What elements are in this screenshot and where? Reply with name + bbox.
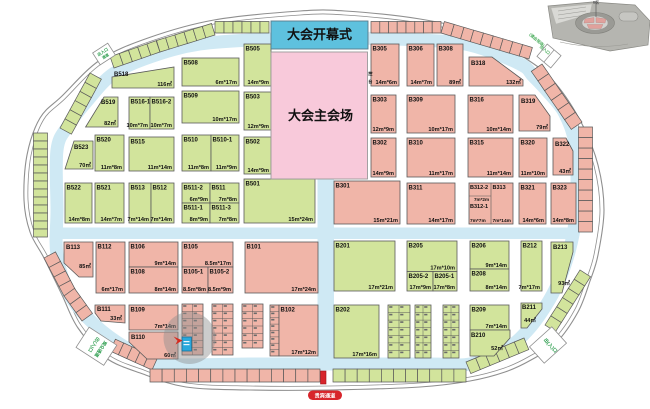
svg-text:B521: B521 bbox=[97, 186, 112, 192]
svg-text:12m*9m: 12m*9m bbox=[248, 124, 269, 130]
svg-text:B301: B301 bbox=[336, 184, 351, 190]
svg-text:B208: B208 bbox=[472, 272, 487, 278]
svg-text:10m*7m: 10m*7m bbox=[127, 123, 148, 129]
svg-text:B302: B302 bbox=[373, 141, 388, 147]
svg-text:10m*17m: 10m*17m bbox=[212, 117, 237, 123]
svg-text:B102: B102 bbox=[281, 308, 296, 314]
svg-text:B518: B518 bbox=[114, 72, 129, 78]
svg-text:17m*24m: 17m*24m bbox=[291, 287, 316, 293]
svg-text:B210: B210 bbox=[471, 333, 486, 339]
svg-text:B105: B105 bbox=[184, 245, 199, 251]
svg-text:8.5m*8m: 8.5m*8m bbox=[183, 287, 206, 293]
svg-text:B312-2: B312-2 bbox=[470, 185, 488, 191]
svg-text:89㎡: 89㎡ bbox=[449, 78, 461, 86]
svg-text:B310: B310 bbox=[409, 141, 424, 147]
svg-text:B510: B510 bbox=[184, 138, 199, 144]
svg-text:11m*10m: 11m*10m bbox=[521, 171, 545, 177]
svg-text:B511-2: B511-2 bbox=[184, 186, 204, 192]
svg-text:14m*9m: 14m*9m bbox=[248, 168, 269, 174]
svg-text:11m*14m: 11m*14m bbox=[148, 165, 172, 171]
svg-text:B311: B311 bbox=[409, 186, 424, 192]
svg-text:10m*7m: 10m*7m bbox=[151, 123, 172, 129]
svg-text:B309: B309 bbox=[409, 98, 424, 104]
svg-text:93㎡: 93㎡ bbox=[558, 279, 570, 287]
svg-text:52㎡: 52㎡ bbox=[491, 344, 503, 352]
svg-text:8.5m*9m: 8.5m*9m bbox=[208, 287, 231, 293]
svg-text:6m*9m: 6m*9m bbox=[190, 197, 208, 203]
svg-text:7m*8m: 7m*8m bbox=[219, 217, 237, 223]
svg-text:6m*17m: 6m*17m bbox=[216, 80, 237, 86]
svg-text:10m*17m: 10m*17m bbox=[428, 127, 453, 133]
svg-text:7m*14m: 7m*14m bbox=[128, 217, 149, 223]
svg-text:11m*8m: 11m*8m bbox=[101, 165, 122, 171]
svg-text:7m*14m: 7m*14m bbox=[151, 217, 172, 223]
svg-text:B320: B320 bbox=[521, 141, 536, 147]
svg-text:14m*8m: 14m*8m bbox=[553, 218, 574, 224]
svg-text:B303: B303 bbox=[373, 98, 388, 104]
svg-text:B206: B206 bbox=[472, 244, 487, 250]
svg-text:B205-1: B205-1 bbox=[435, 274, 455, 280]
svg-text:B308: B308 bbox=[439, 47, 454, 53]
svg-text:B503: B503 bbox=[246, 95, 261, 101]
svg-text:B323: B323 bbox=[553, 186, 568, 192]
svg-text:11m*9m: 11m*9m bbox=[216, 165, 237, 171]
svg-text:B313: B313 bbox=[493, 185, 506, 191]
svg-text:B205: B205 bbox=[409, 244, 424, 250]
svg-text:116㎡: 116㎡ bbox=[157, 80, 172, 88]
svg-text:大会主会场: 大会主会场 bbox=[288, 108, 353, 123]
svg-text:14m*9m: 14m*9m bbox=[373, 171, 394, 177]
svg-text:43㎡: 43㎡ bbox=[559, 167, 571, 175]
svg-text:B511-3: B511-3 bbox=[212, 206, 232, 212]
svg-text:44㎡: 44㎡ bbox=[524, 316, 536, 324]
svg-text:大会开幕式: 大会开幕式 bbox=[287, 27, 352, 42]
svg-text:14m*6m: 14m*6m bbox=[523, 218, 544, 224]
svg-text:B520: B520 bbox=[97, 138, 112, 144]
svg-text:14m*7m: 14m*7m bbox=[101, 217, 122, 223]
svg-text:B205-2: B205-2 bbox=[409, 274, 429, 280]
svg-text:33㎡: 33㎡ bbox=[110, 314, 122, 322]
svg-text:17m*8m: 17m*8m bbox=[434, 285, 455, 291]
svg-text:B101: B101 bbox=[247, 245, 262, 251]
svg-text:9m*14m: 9m*14m bbox=[486, 263, 507, 269]
svg-text:11m*8m: 11m*8m bbox=[188, 165, 209, 171]
svg-text:B区: B区 bbox=[593, 0, 600, 5]
svg-text:B511: B511 bbox=[212, 186, 227, 192]
svg-text:B108: B108 bbox=[131, 270, 146, 276]
svg-text:B112: B112 bbox=[98, 245, 113, 251]
svg-text:B105-2: B105-2 bbox=[210, 270, 230, 276]
svg-text:B318: B318 bbox=[471, 61, 486, 67]
svg-text:B213: B213 bbox=[553, 245, 568, 251]
svg-text:B209: B209 bbox=[472, 308, 487, 314]
svg-text:贵宾通道: 贵宾通道 bbox=[315, 392, 337, 400]
svg-text:B211: B211 bbox=[522, 305, 537, 311]
svg-text:B319: B319 bbox=[521, 99, 536, 105]
svg-text:17m*16m: 17m*16m bbox=[352, 352, 377, 358]
svg-text:12m*9m: 12m*9m bbox=[373, 127, 394, 133]
svg-text:B306: B306 bbox=[409, 47, 424, 53]
svg-text:B523: B523 bbox=[74, 145, 89, 151]
svg-text:B516-1: B516-1 bbox=[131, 100, 151, 106]
svg-text:17m*12m: 17m*12m bbox=[291, 350, 316, 356]
svg-text:11m*14m: 11m*14m bbox=[487, 171, 511, 177]
svg-text:B110: B110 bbox=[131, 335, 146, 341]
svg-text:B105-1: B105-1 bbox=[184, 270, 204, 276]
svg-text:B201: B201 bbox=[336, 244, 351, 250]
svg-text:10m*14m: 10m*14m bbox=[486, 127, 511, 133]
svg-text:14m*7m: 14m*7m bbox=[411, 80, 432, 86]
svg-text:B501: B501 bbox=[246, 182, 261, 188]
svg-text:B316: B316 bbox=[470, 98, 485, 104]
svg-text:B522: B522 bbox=[67, 186, 82, 192]
svg-text:8m*14m: 8m*14m bbox=[486, 285, 507, 291]
svg-text:B111: B111 bbox=[97, 307, 111, 313]
svg-text:B516-2: B516-2 bbox=[152, 100, 172, 106]
svg-text:B109: B109 bbox=[131, 308, 146, 314]
svg-text:B322: B322 bbox=[555, 142, 570, 148]
svg-text:B515: B515 bbox=[131, 140, 146, 146]
svg-text:14m*17m: 14m*17m bbox=[428, 218, 453, 224]
svg-text:6m*17m: 6m*17m bbox=[102, 287, 123, 293]
svg-text:82㎡: 82㎡ bbox=[104, 119, 116, 127]
svg-text:11m*17m: 11m*17m bbox=[429, 171, 453, 177]
svg-text:B113: B113 bbox=[66, 245, 81, 251]
svg-text:8.5m*17m: 8.5m*17m bbox=[205, 261, 231, 267]
svg-text:14m*6m: 14m*6m bbox=[376, 80, 397, 86]
svg-text:B512: B512 bbox=[153, 186, 168, 192]
svg-text:B513: B513 bbox=[131, 186, 146, 192]
svg-text:B305: B305 bbox=[373, 47, 388, 53]
svg-text:B315: B315 bbox=[470, 141, 485, 147]
svg-text:132㎡: 132㎡ bbox=[506, 78, 521, 86]
svg-text:14m*9m: 14m*9m bbox=[248, 80, 269, 86]
svg-text:7m*7m: 7m*7m bbox=[470, 218, 486, 224]
svg-text:B519: B519 bbox=[101, 100, 116, 106]
svg-text:7m*8m: 7m*8m bbox=[219, 197, 237, 203]
svg-text:17m*9m: 17m*9m bbox=[410, 285, 431, 291]
svg-text:B505: B505 bbox=[246, 47, 261, 53]
svg-text:B502: B502 bbox=[246, 140, 261, 146]
svg-text:70㎡: 70㎡ bbox=[79, 161, 91, 169]
svg-text:9m*14m: 9m*14m bbox=[155, 261, 176, 267]
svg-text:17m*21m: 17m*21m bbox=[368, 285, 393, 291]
svg-text:14m*8m: 14m*8m bbox=[69, 217, 90, 223]
svg-text:B321: B321 bbox=[521, 186, 536, 192]
svg-text:台: 台 bbox=[368, 78, 372, 85]
svg-text:B511-1: B511-1 bbox=[184, 206, 204, 212]
svg-text:B510-1: B510-1 bbox=[213, 138, 233, 144]
svg-text:B312-1: B312-1 bbox=[470, 204, 488, 210]
svg-text:17m*10m: 17m*10m bbox=[430, 266, 455, 272]
svg-text:B106: B106 bbox=[131, 245, 146, 251]
svg-text:7m*14m: 7m*14m bbox=[493, 218, 511, 224]
svg-text:85㎡: 85㎡ bbox=[79, 262, 91, 270]
svg-text:B212: B212 bbox=[523, 244, 538, 250]
svg-text:15m*21m: 15m*21m bbox=[373, 218, 398, 224]
svg-text:7m*17m: 7m*17m bbox=[519, 285, 540, 291]
svg-text:B508: B508 bbox=[184, 61, 199, 67]
svg-text:B509: B509 bbox=[184, 94, 199, 100]
svg-text:15m*24m: 15m*24m bbox=[288, 217, 313, 223]
svg-text:B202: B202 bbox=[336, 308, 351, 314]
svg-text:7m*2m: 7m*2m bbox=[474, 197, 489, 202]
svg-text:79㎡: 79㎡ bbox=[536, 123, 548, 131]
svg-text:7m*14m: 7m*14m bbox=[486, 324, 507, 330]
svg-text:8m*9m: 8m*9m bbox=[190, 217, 208, 223]
svg-text:8m*14m: 8m*14m bbox=[155, 287, 176, 293]
